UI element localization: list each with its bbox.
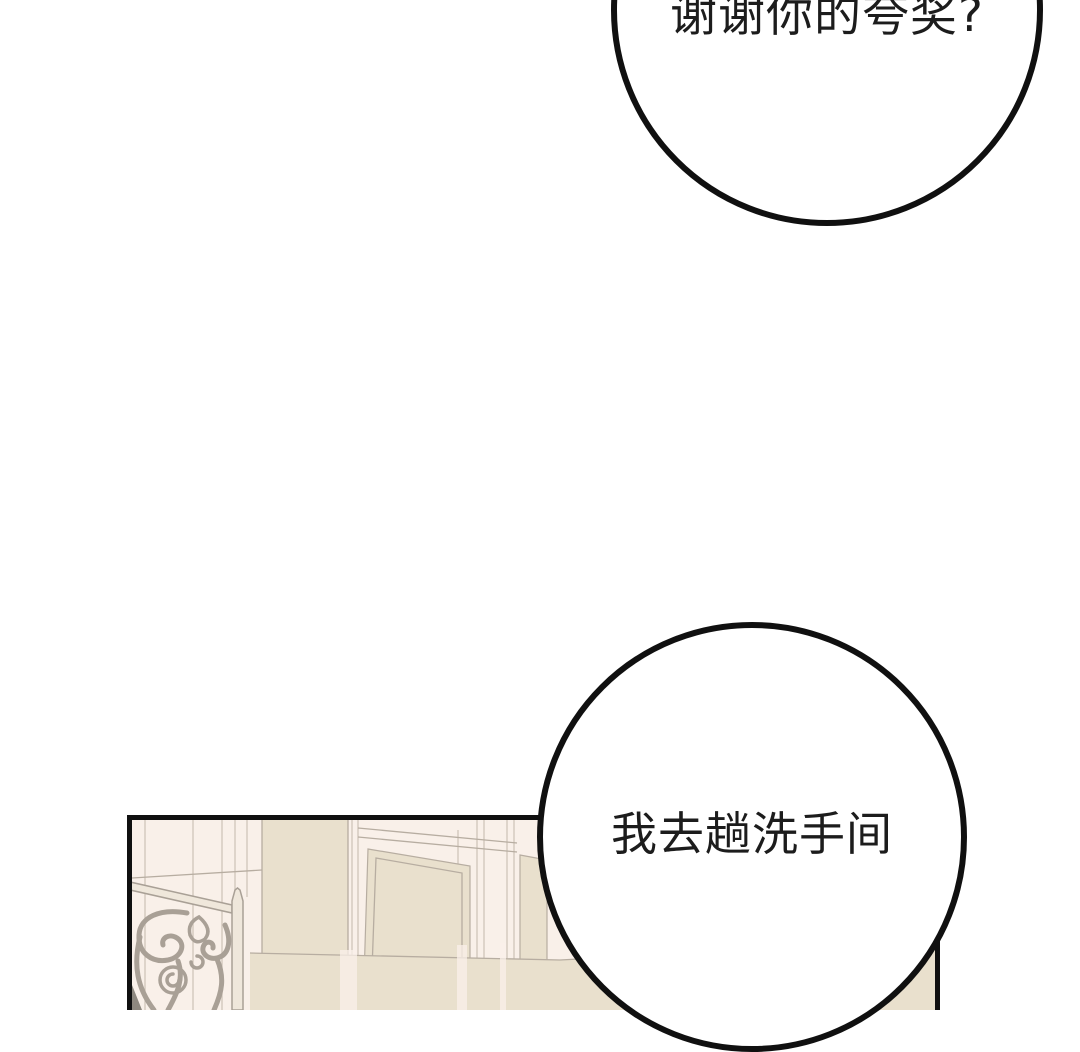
bottom-speech-text: 我去趟洗手间 — [611, 798, 893, 864]
bottom-speech-bubble: 我去趟洗手间 — [537, 622, 967, 1052]
railing-post — [232, 888, 243, 1010]
comic-page: { "scene": { "background": "#ffffff", "o… — [0, 0, 1080, 998]
top-speech-bubble: 谢谢你的夸奖? — [611, 0, 1043, 226]
top-speech-text: 谢谢你的夸奖? — [617, 0, 1037, 42]
